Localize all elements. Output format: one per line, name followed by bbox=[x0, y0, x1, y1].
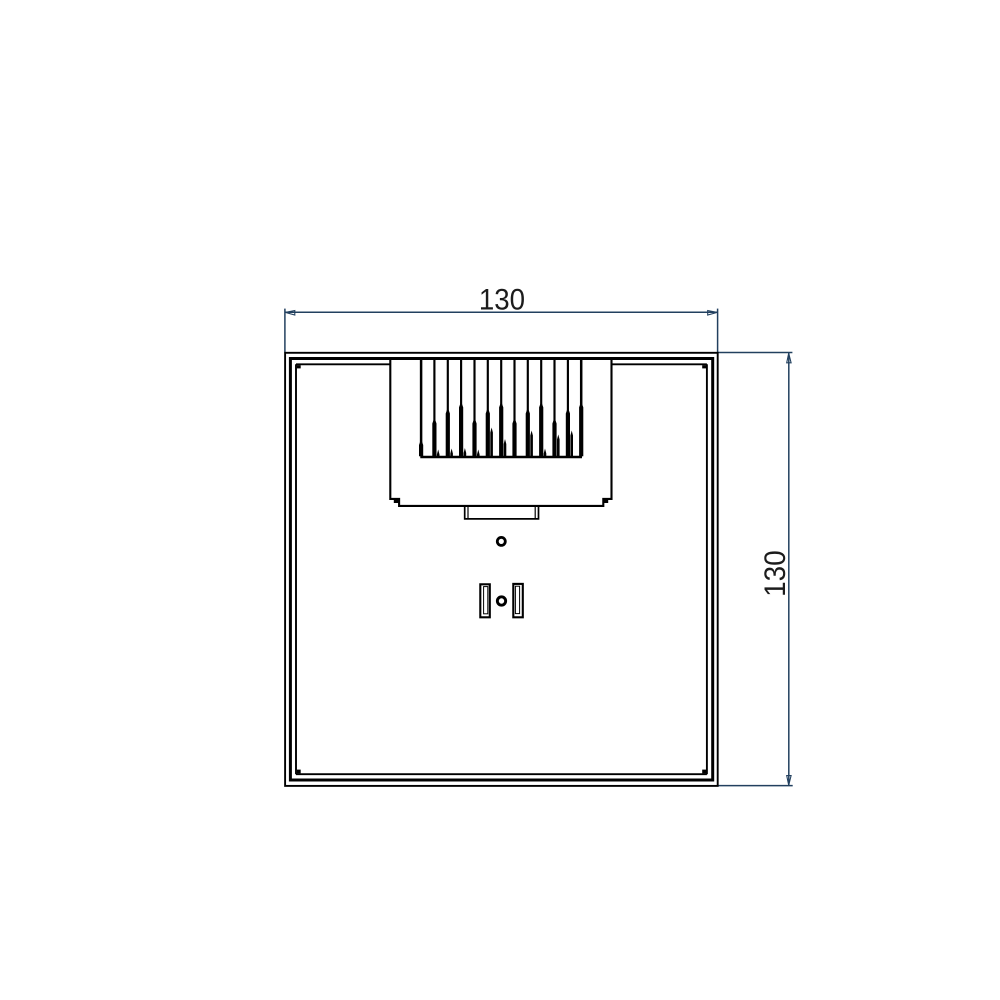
svg-text:130: 130 bbox=[479, 283, 525, 316]
svg-text:130: 130 bbox=[759, 550, 792, 597]
